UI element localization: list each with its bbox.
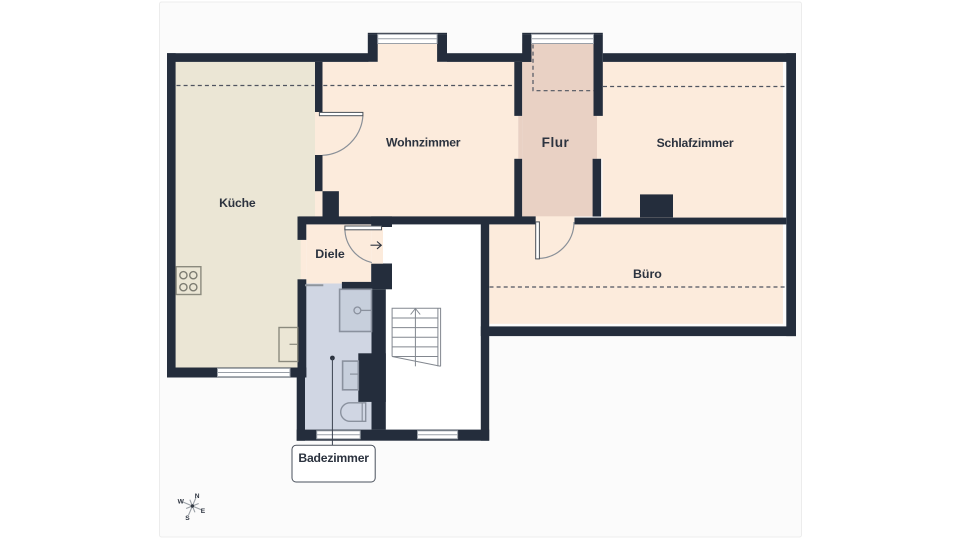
svg-text:Schlafzimmer: Schlafzimmer	[657, 136, 734, 150]
svg-text:W: W	[178, 498, 185, 505]
svg-text:Küche: Küche	[219, 196, 256, 210]
svg-text:S: S	[185, 515, 190, 522]
svg-text:N: N	[195, 493, 200, 500]
svg-text:Badezimmer: Badezimmer	[298, 451, 369, 465]
svg-text:Büro: Büro	[633, 267, 662, 281]
svg-text:Flur: Flur	[542, 135, 570, 150]
svg-text:E: E	[201, 508, 206, 515]
svg-text:Wohnzimmer: Wohnzimmer	[386, 136, 461, 150]
svg-text:Diele: Diele	[315, 247, 345, 261]
